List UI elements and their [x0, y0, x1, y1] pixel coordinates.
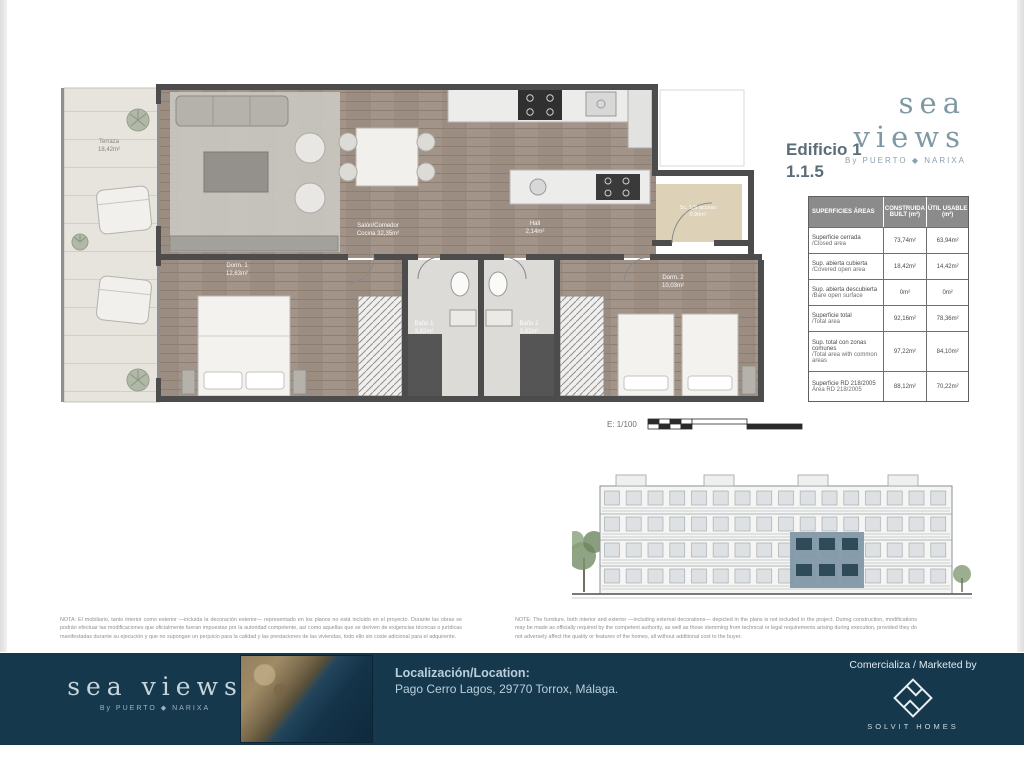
brochure-page: Terraza18,42m² Salón/ComedorCocina 32,35…	[0, 0, 1024, 768]
shower	[520, 334, 554, 396]
toilet	[451, 272, 469, 296]
toilet	[489, 272, 507, 296]
bedroom2	[618, 314, 756, 396]
solvit-homes-logo-icon	[838, 677, 988, 719]
dining-chair	[339, 163, 357, 181]
armchair	[295, 133, 325, 163]
armchair	[295, 183, 325, 213]
table-header-row: SUPERFICIES ÁREAS CONSTRUIDA BUILT (m²) …	[809, 197, 968, 227]
washbasin	[450, 310, 476, 326]
building-outline	[600, 475, 952, 594]
col-header-built: CONSTRUIDA BUILT (m²)	[884, 197, 928, 227]
dining-chair	[339, 133, 357, 151]
dining-chair	[417, 133, 435, 151]
areas-table: SUPERFICIES ÁREAS CONSTRUIDA BUILT (m²) …	[808, 196, 969, 402]
note-english: NOTE: The furniture, both interior and e…	[515, 616, 917, 641]
sofa	[176, 96, 288, 126]
terrace-lounger	[96, 185, 152, 234]
location-label: Localización/Location:	[395, 666, 618, 680]
shower	[408, 334, 442, 396]
marketed-by-label: Comercializa / Marketed by	[838, 659, 988, 671]
marketed-by-block: Comercializa / Marketed by SOLVIT HOMES	[838, 659, 988, 731]
wardrobe	[560, 296, 604, 396]
unit-identifier: Edificio 1 1.1.5	[786, 140, 928, 182]
washbasin	[486, 310, 512, 326]
page-edge-left	[0, 0, 7, 652]
plant-icon	[72, 234, 88, 250]
col-header-usable: ÚTIL USABLE (m²)	[927, 197, 968, 227]
location-value: Pago Cerro Lagos, 29770 Torrox, Málaga.	[395, 682, 618, 696]
plant-icon	[127, 109, 149, 131]
nightstand	[293, 370, 306, 394]
dining-table	[356, 128, 418, 186]
table-row: Superficie RD 218/2005Área RD 218/2005 8…	[809, 371, 968, 401]
table-row: Superficie cerrada/Closed area 73,74m² 6…	[809, 227, 968, 253]
fridge	[628, 88, 652, 148]
table-row: Superficie total/Total area 92,16m² 78,3…	[809, 305, 968, 331]
footer-brand-block: sea views By PUERTO ◆ NARIXA	[60, 672, 250, 712]
floor-plan	[58, 84, 774, 418]
scale-graphic	[647, 417, 807, 431]
terrace-railing	[61, 88, 64, 402]
terrace	[61, 88, 160, 402]
sideboard	[170, 236, 338, 251]
location-map-thumbnail	[240, 655, 373, 743]
entry-room-floor	[656, 184, 742, 242]
building-name: Edificio 1	[786, 140, 928, 160]
coffee-table	[204, 152, 268, 192]
patio-outline	[660, 90, 744, 166]
plant-icon	[127, 369, 149, 391]
table-row: Sup. abierta descubierta/Bare open surfa…	[809, 279, 968, 305]
page-edge-right	[1017, 0, 1024, 652]
wardrobe	[358, 296, 402, 396]
living-room	[170, 92, 340, 252]
island-cooktop	[596, 174, 640, 200]
nightstand	[742, 366, 756, 394]
building-elevation	[572, 462, 972, 610]
marketed-by-name: SOLVIT HOMES	[838, 722, 988, 731]
scale-bar: E: 1/100	[607, 417, 807, 431]
cooktop	[518, 90, 562, 120]
table-row: Sup. total con zonas comunes/Total area …	[809, 331, 968, 371]
kitchen-sink	[586, 92, 616, 116]
footer-brand-byline: By PUERTO ◆ NARIXA	[60, 704, 250, 712]
nightstand	[182, 370, 195, 394]
footer-brand-logo: sea views	[60, 672, 250, 701]
location-block: Localización/Location: Pago Cerro Lagos,…	[395, 666, 618, 696]
island-sink	[530, 179, 546, 195]
note-spanish: NOTA: El mobiliario, tanto interior como…	[60, 616, 462, 641]
terrace-lounger	[96, 275, 152, 324]
highlighted-unit	[790, 532, 864, 588]
unit-number: 1.1.5	[786, 162, 928, 182]
scale-text: E: 1/100	[607, 420, 637, 429]
col-header-areas: SUPERFICIES ÁREAS	[809, 197, 884, 227]
table-row: Sup. abierta cubierta/Covered open area …	[809, 253, 968, 279]
dining-chair	[417, 163, 435, 181]
